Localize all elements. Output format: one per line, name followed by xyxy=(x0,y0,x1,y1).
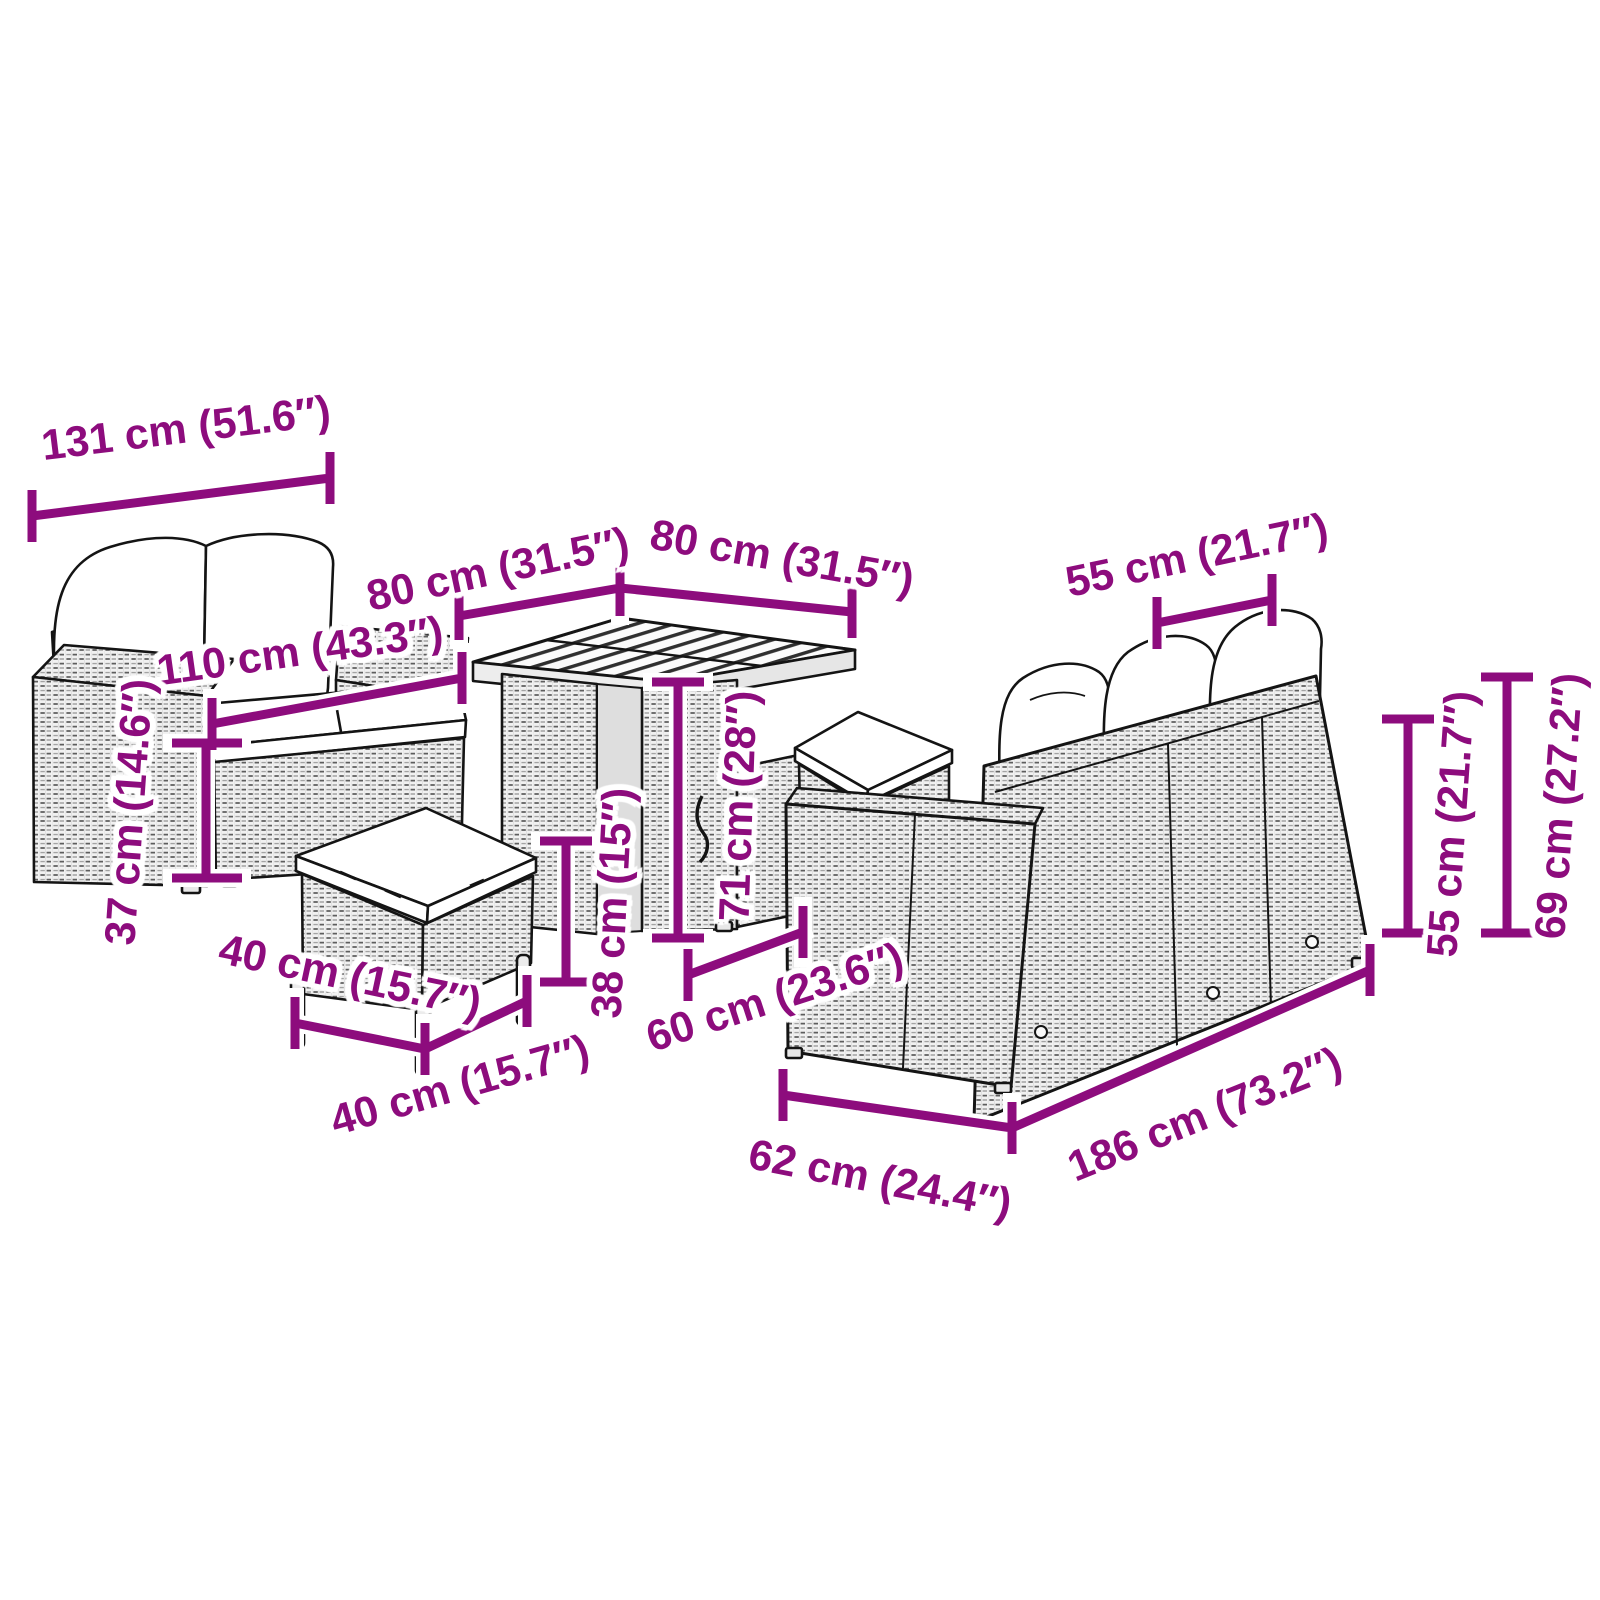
three-seater-sofa-illustration xyxy=(786,610,1371,1122)
dimension-diagram: 131 cm (51.6″) 80 cm (31.5″) 80 cm (31.5… xyxy=(0,0,1600,1600)
furniture-line-art xyxy=(0,0,1600,1600)
dim-label-table-height: 71 cm (28″) xyxy=(710,690,767,923)
